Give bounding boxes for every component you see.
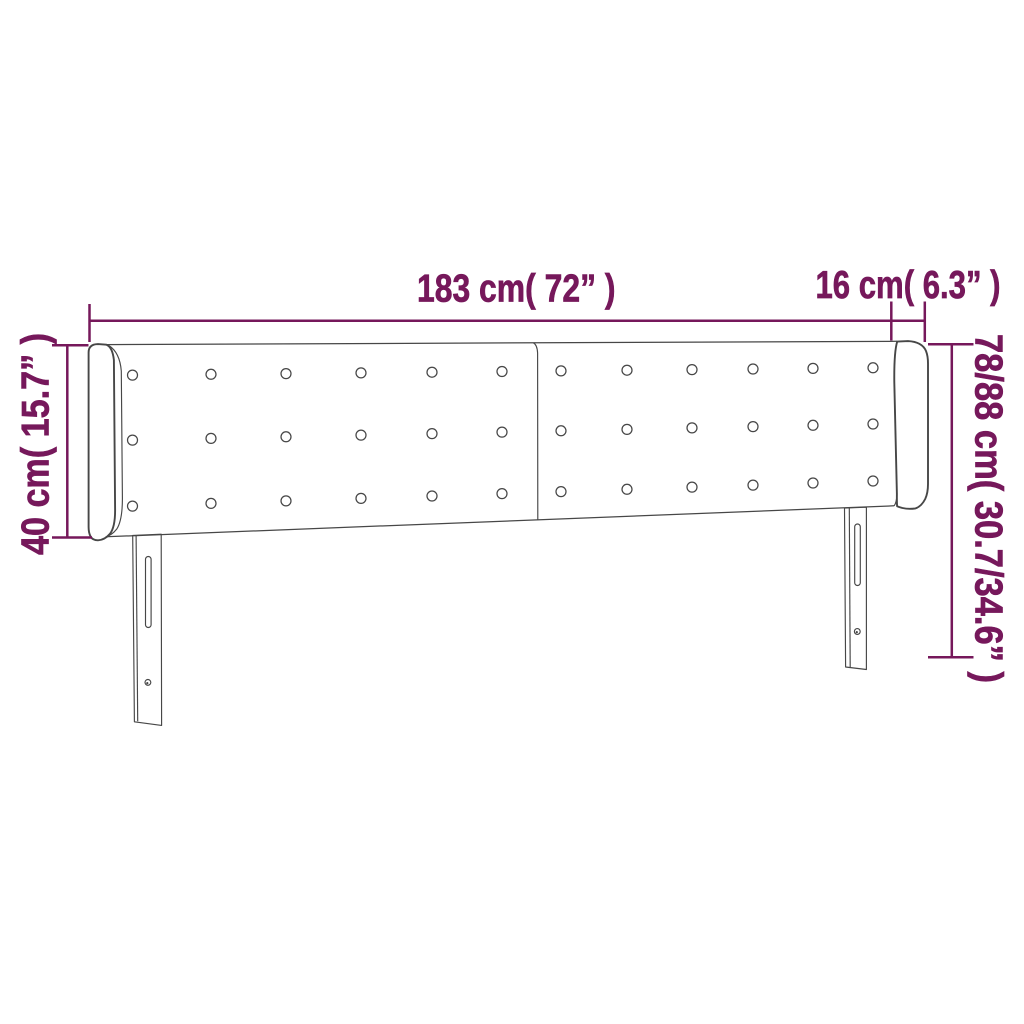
svg-text:16 cm( 6.3” ): 16 cm( 6.3” ) bbox=[816, 264, 1001, 307]
svg-text:78/88 cm( 30.7/34.6” ): 78/88 cm( 30.7/34.6” ) bbox=[967, 334, 1010, 683]
svg-text:40 cm( 15.7” ): 40 cm( 15.7” ) bbox=[15, 333, 58, 555]
svg-text:183 cm( 72” ): 183 cm( 72” ) bbox=[417, 268, 616, 311]
